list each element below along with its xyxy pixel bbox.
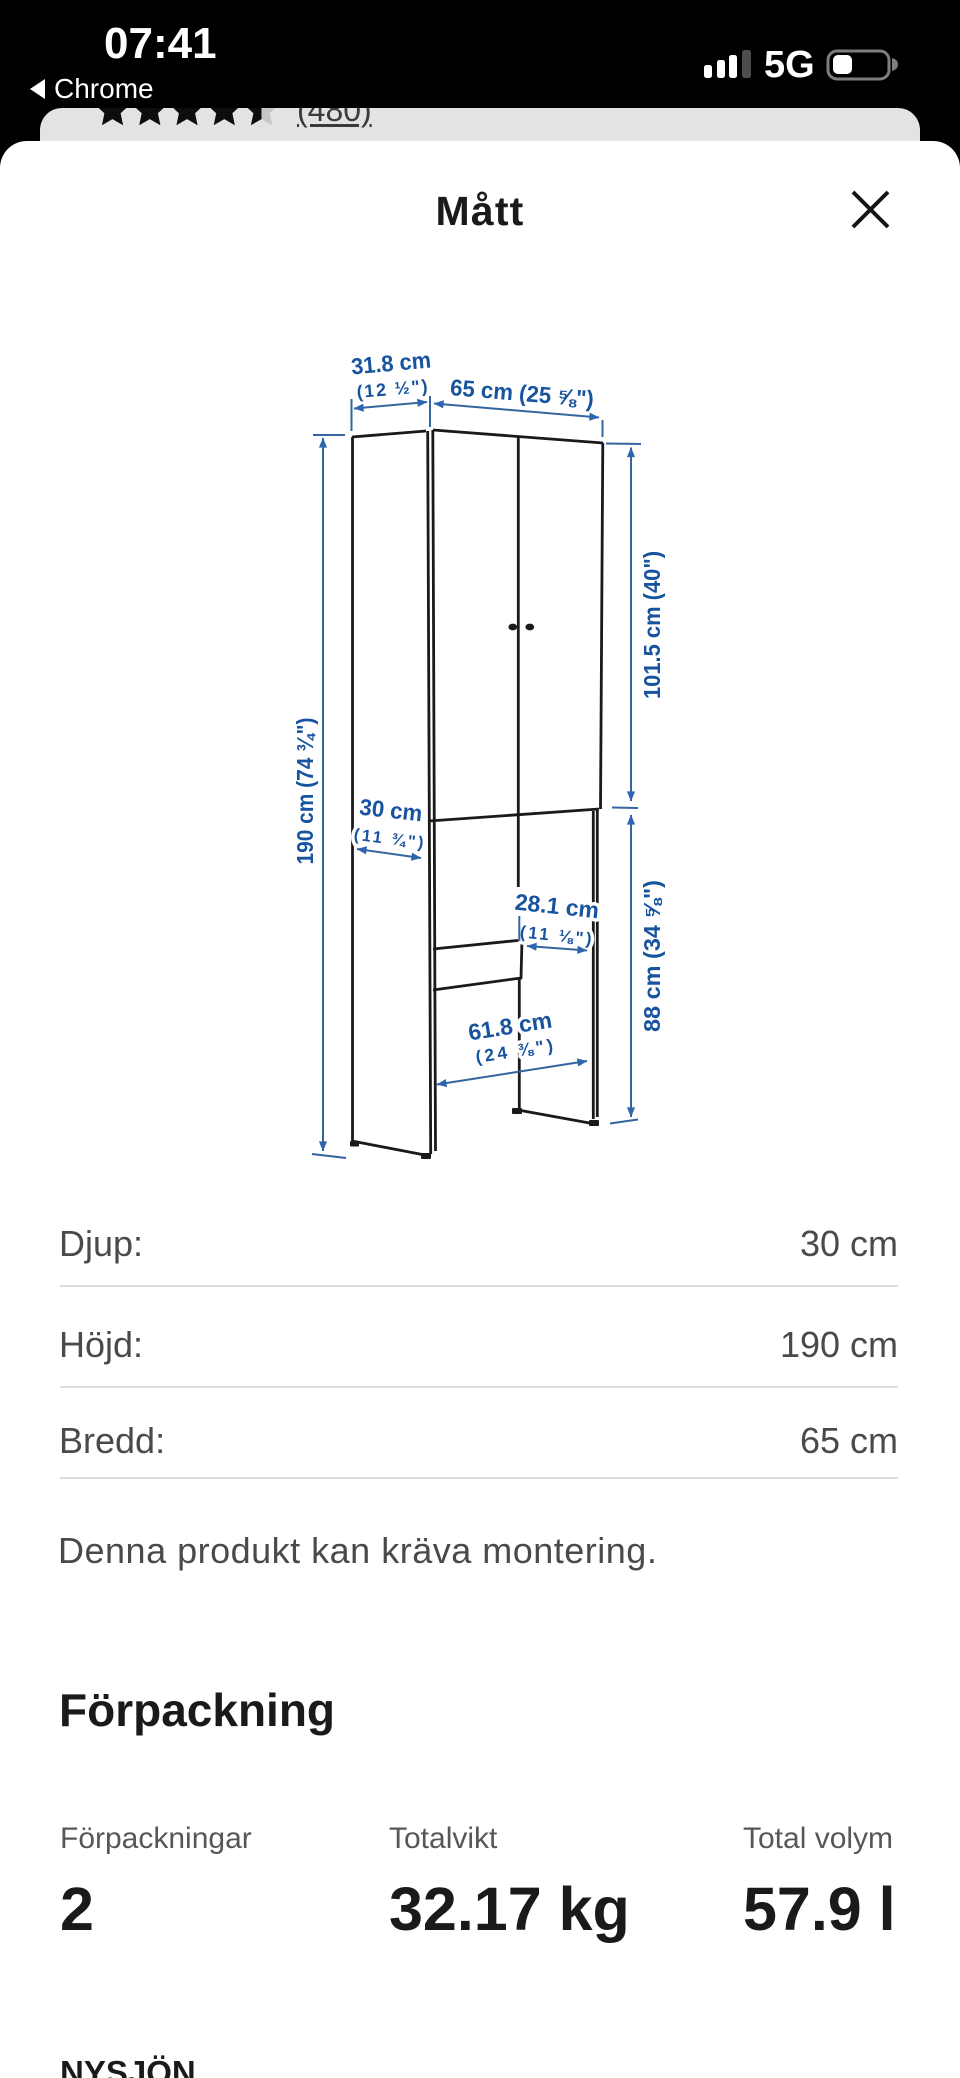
svg-text:190 cm (74 ¾"): 190 cm (74 ¾") xyxy=(292,718,318,865)
svg-text:101.5 cm (40"): 101.5 cm (40") xyxy=(639,551,665,699)
svg-text:(11 ¾"): (11 ¾") xyxy=(353,826,425,852)
svg-text:30 cm: 30 cm xyxy=(358,794,423,827)
svg-text:88 cm (34 ⅝"): 88 cm (34 ⅝") xyxy=(639,880,665,1032)
svg-text:(12 ½"): (12 ½") xyxy=(356,376,428,402)
svg-text:31.8 cm: 31.8 cm xyxy=(350,347,432,380)
svg-text:28.1 cm: 28.1 cm xyxy=(514,889,601,924)
svg-text:(11 ⅛"): (11 ⅛") xyxy=(519,922,593,948)
